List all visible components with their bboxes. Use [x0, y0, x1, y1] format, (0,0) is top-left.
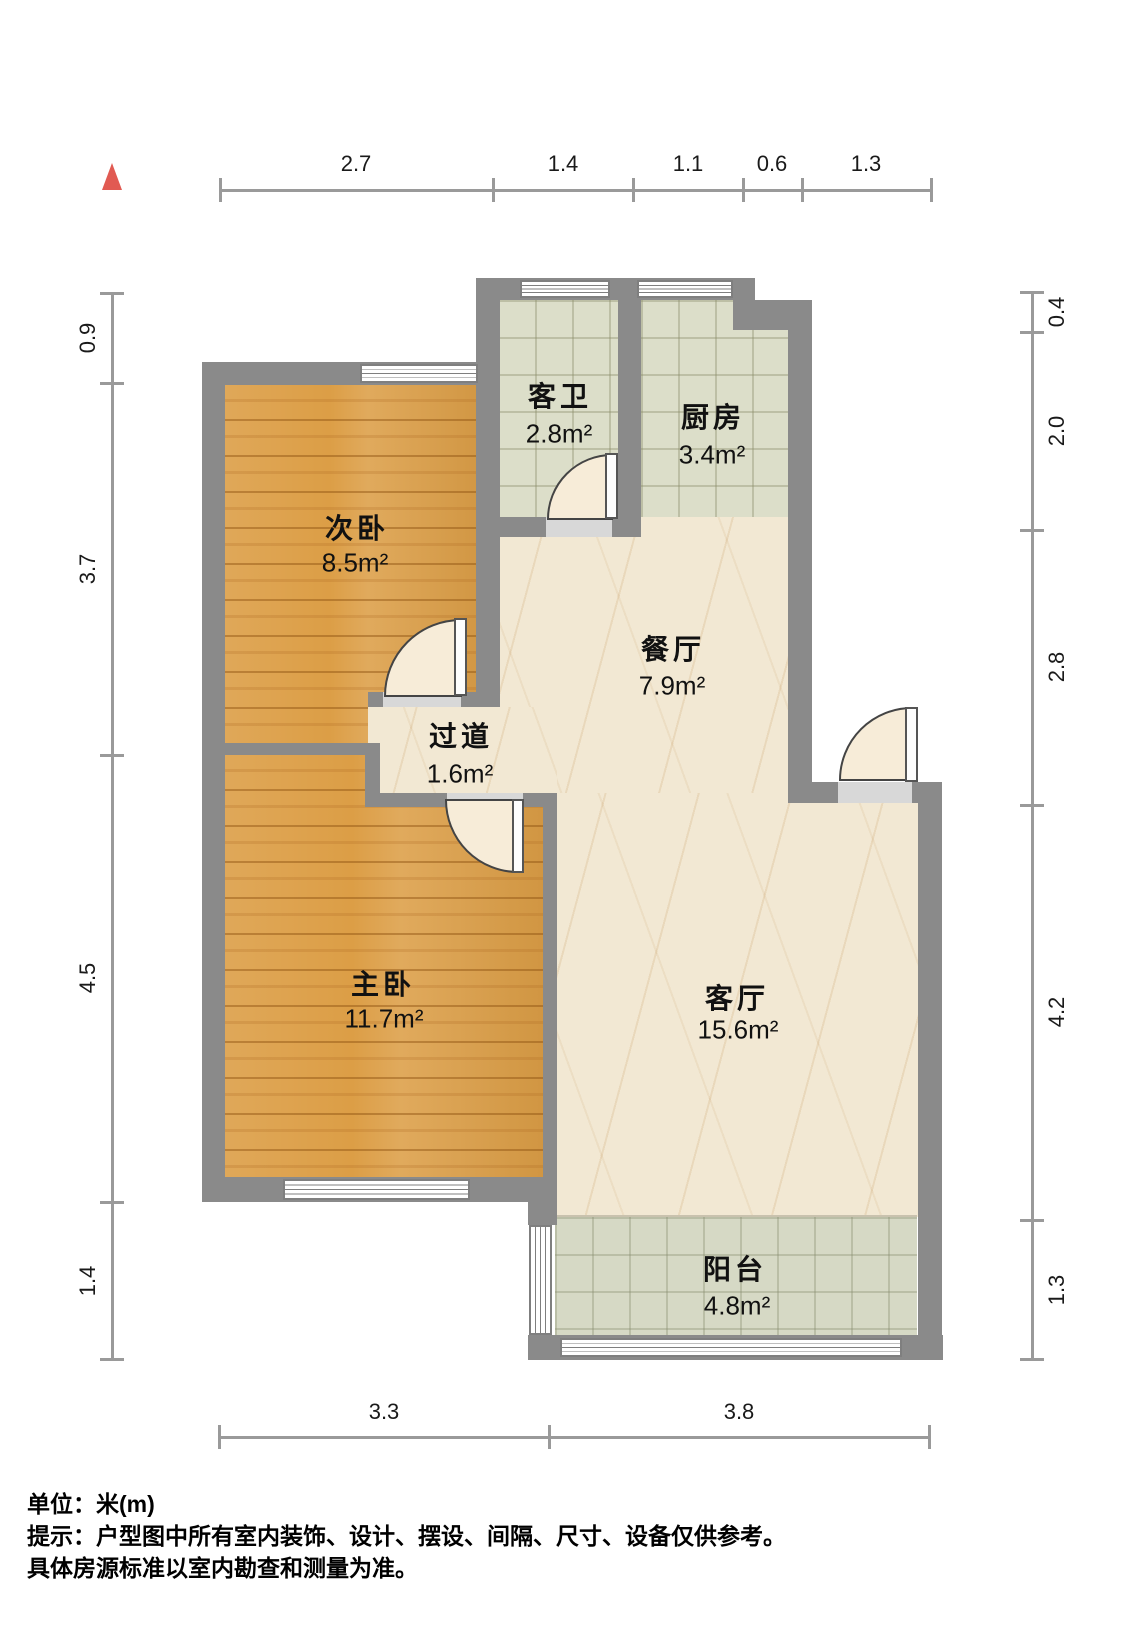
- room-area-hallway: 1.6m²: [427, 759, 493, 790]
- room-label-secondary-bedroom: 次卧: [325, 507, 389, 547]
- room-area-guest-bathroom: 2.8m²: [526, 419, 592, 450]
- door-leaf-master-bedroom: [512, 799, 524, 873]
- door-leaf-secondary-bedroom: [454, 618, 467, 696]
- floorplan-canvas: 2.7 1.4 1.1 0.6 1.3 0.9 3.7 4.5 1.4 0.4 …: [0, 0, 1144, 1637]
- door-leaf-bathroom: [605, 453, 618, 519]
- door-arc-secondary-bedroom: [385, 620, 461, 696]
- door-arcs-layer: [0, 0, 1144, 1637]
- door-arc-master-bedroom: [446, 800, 518, 872]
- room-label-guest-bathroom: 客卫: [528, 375, 592, 415]
- room-label-kitchen: 厨房: [681, 396, 745, 436]
- room-area-balcony: 4.8m²: [704, 1291, 770, 1322]
- footer-disclaimer-line2: 具体房源标准以室内勘查和测量为准。: [27, 1552, 786, 1584]
- room-label-master-bedroom: 主卧: [351, 963, 415, 1003]
- room-label-living-room: 客厅: [705, 977, 769, 1017]
- footer-disclaimer-line1: 提示：户型图中所有室内装饰、设计、摆设、间隔、尺寸、设备仅供参考。: [27, 1520, 786, 1552]
- room-area-master-bedroom: 11.7m²: [345, 1004, 424, 1035]
- room-area-dining-room: 7.9m²: [639, 671, 705, 702]
- footer-unit-line: 单位：米(m): [27, 1488, 786, 1520]
- room-label-dining-room: 餐厅: [641, 628, 705, 668]
- door-leaf-entrance: [905, 707, 918, 782]
- room-label-hallway: 过道: [429, 715, 493, 755]
- room-area-living-room: 15.6m²: [698, 1015, 779, 1046]
- door-arc-bathroom: [548, 455, 612, 519]
- footer-note: 单位：米(m) 提示：户型图中所有室内装饰、设计、摆设、间隔、尺寸、设备仅供参考…: [27, 1488, 786, 1584]
- room-area-kitchen: 3.4m²: [679, 440, 745, 471]
- room-area-secondary-bedroom: 8.5m²: [322, 548, 388, 579]
- door-arc-entrance: [840, 708, 912, 780]
- room-label-balcony: 阳台: [703, 1248, 767, 1288]
